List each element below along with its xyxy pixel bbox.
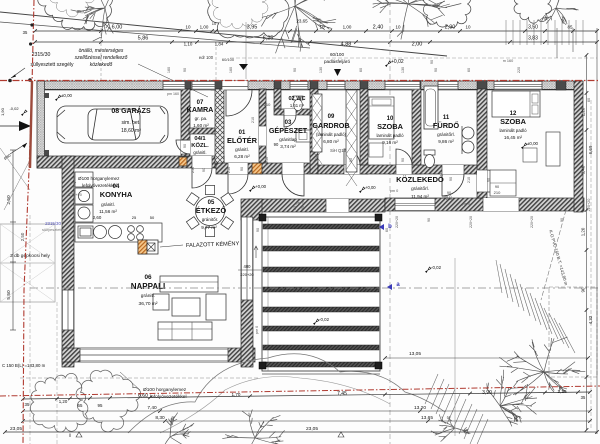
svg-text:GARDROB: GARDROB — [312, 121, 349, 130]
svg-text:3,83: 3,83 — [528, 36, 538, 42]
svg-text:1,30+20: 1,30+20 — [68, 193, 82, 197]
svg-text:6,80 m²: 6,80 m² — [323, 139, 339, 144]
svg-text:1,20: 1,20 — [581, 227, 586, 236]
svg-text:4,88: 4,88 — [341, 42, 352, 48]
svg-text:90: 90 — [293, 206, 297, 210]
svg-text:ÉTKEZŐ: ÉTKEZŐ — [196, 206, 227, 215]
svg-text:10: 10 — [395, 25, 401, 30]
svg-text:90: 90 — [293, 68, 297, 72]
svg-text:SZOBA: SZOBA — [500, 117, 527, 126]
svg-text:3,74 m²: 3,74 m² — [280, 144, 296, 149]
svg-text:KÖZL.: KÖZL. — [191, 142, 209, 149]
svg-text:KONYHA: KONYHA — [100, 190, 133, 199]
svg-text:90: 90 — [256, 228, 260, 232]
svg-text:-0,02: -0,02 — [9, 106, 19, 111]
svg-text:10: 10 — [319, 25, 325, 30]
svg-text:09: 09 — [328, 114, 335, 120]
svg-text:160: 160 — [229, 67, 233, 73]
svg-text:3,40: 3,40 — [581, 165, 586, 174]
svg-text:KAMRA: KAMRA — [187, 105, 214, 114]
svg-text:KÖZLEKEDŐ: KÖZLEKEDŐ — [396, 175, 444, 184]
svg-text:3,90: 3,90 — [482, 390, 492, 396]
svg-text:+0,00: +0,00 — [255, 184, 267, 189]
svg-text:130: 130 — [401, 67, 405, 73]
svg-text:3,95: 3,95 — [247, 25, 258, 31]
svg-text:2,20: 2,20 — [558, 389, 567, 394]
svg-text:6,28 m²: 6,28 m² — [234, 154, 250, 159]
svg-text:220+20: 220+20 — [240, 272, 254, 277]
svg-text:90: 90 — [487, 178, 491, 182]
svg-text:10: 10 — [465, 25, 471, 30]
svg-text:pm 0: pm 0 — [462, 202, 470, 206]
svg-text:90: 90 — [274, 142, 279, 147]
svg-text:2 db gépkocsi hely: 2 db gépkocsi hely — [10, 253, 50, 259]
svg-text:gránitőrl.: gránitőrl. — [437, 132, 455, 137]
svg-text:1,90: 1,90 — [0, 107, 5, 116]
svg-text:gránitl.: gránitl. — [193, 150, 206, 155]
svg-text:pre 0: pre 0 — [255, 326, 259, 334]
svg-text:18,60 m²: 18,60 m² — [121, 128, 141, 134]
svg-text:16,45 m²: 16,45 m² — [504, 135, 523, 140]
svg-text:gránitlap: gránitlap — [279, 137, 297, 142]
svg-text:1,20: 1,20 — [59, 399, 68, 404]
svg-text:90: 90 — [349, 158, 353, 162]
svg-text:02 WC: 02 WC — [288, 96, 305, 102]
svg-text:25: 25 — [132, 215, 137, 220]
svg-text:13,65: 13,65 — [421, 415, 433, 421]
svg-text:210: 210 — [251, 117, 255, 123]
svg-text:5,50: 5,50 — [6, 290, 12, 300]
svg-text:gránitl.: gránitl. — [141, 293, 155, 299]
svg-text:10: 10 — [185, 25, 191, 30]
svg-text:90: 90 — [434, 68, 438, 72]
svg-text:ELŐTÉR: ELŐTÉR — [227, 136, 258, 145]
svg-text:160: 160 — [167, 67, 171, 73]
svg-text:23,65: 23,65 — [296, 19, 308, 24]
svg-text:gránitőr.: gránitőr. — [202, 217, 219, 222]
svg-text:edr 100: edr 100 — [199, 55, 214, 60]
svg-text:4,32: 4,32 — [588, 315, 593, 324]
svg-text:90: 90 — [183, 144, 187, 148]
svg-text:Ø100 horganylemez: Ø100 horganylemez — [78, 176, 120, 181]
svg-text:60: 60 — [467, 68, 471, 72]
svg-text:220: 220 — [517, 67, 521, 73]
svg-text:65: 65 — [78, 403, 83, 408]
svg-text:1,61 m²: 1,61 m² — [290, 103, 305, 108]
svg-text:laminált padló: laminált padló — [376, 133, 404, 138]
svg-text:2,60: 2,60 — [93, 215, 102, 220]
svg-text:90: 90 — [430, 60, 434, 64]
svg-text:85: 85 — [567, 25, 573, 30]
svg-text:SZOBA: SZOBA — [377, 122, 404, 131]
svg-text:lefolyóvezetékkel: lefolyóvezetékkel — [82, 183, 117, 188]
svg-text:8,30: 8,30 — [155, 415, 165, 421]
svg-text:SiH Q19: SiH Q19 — [330, 148, 346, 153]
svg-text:Ø100 horganylemez: Ø100 horganylemez — [143, 387, 187, 393]
svg-text:9,16 m²: 9,16 m² — [382, 140, 398, 145]
svg-text:NAPPALI: NAPPALI — [131, 282, 166, 291]
svg-text:06: 06 — [144, 274, 152, 281]
svg-text:2315/30: 2315/30 — [32, 52, 51, 58]
svg-text:2,90: 2,90 — [445, 25, 456, 31]
svg-text:60: 60 — [587, 98, 591, 102]
svg-text:7,45: 7,45 — [337, 391, 347, 397]
svg-text:220+20: 220+20 — [530, 216, 534, 228]
svg-text:90: 90 — [401, 158, 405, 162]
svg-text:90: 90 — [447, 191, 451, 195]
svg-text:90: 90 — [495, 185, 499, 189]
svg-text:05: 05 — [301, 206, 305, 210]
svg-text:7,40: 7,40 — [147, 405, 157, 411]
svg-text:9,77 m²: 9,77 m² — [201, 225, 217, 230]
svg-text:210: 210 — [264, 102, 271, 107]
svg-text:2,40: 2,40 — [373, 25, 384, 31]
svg-text:1,60 m²: 1,60 m² — [193, 123, 209, 128]
svg-text:210: 210 — [191, 167, 195, 173]
svg-text:2,20: 2,20 — [581, 107, 586, 116]
svg-text:közlekedő: közlekedő — [90, 62, 113, 68]
svg-text:m 160: m 160 — [503, 59, 514, 63]
svg-text:11,56 m²: 11,56 m² — [99, 209, 117, 214]
svg-text:GÉPÉSZET: GÉPÉSZET — [269, 126, 308, 135]
svg-text:130: 130 — [319, 67, 323, 73]
svg-text:3,50: 3,50 — [528, 25, 538, 31]
svg-text:220+20: 220+20 — [587, 199, 591, 212]
svg-text:90: 90 — [427, 218, 431, 222]
svg-text:210: 210 — [446, 197, 452, 201]
svg-text:210: 210 — [265, 157, 269, 163]
svg-text:pm 160: pm 160 — [167, 92, 179, 96]
svg-text:szellőzéssel rendelkező: szellőzéssel rendelkező — [75, 55, 128, 61]
svg-text:23,05: 23,05 — [306, 426, 318, 432]
svg-text:+0,00: +0,00 — [365, 185, 376, 190]
svg-text:04/1: 04/1 — [194, 136, 206, 142]
svg-text:gr. pa.: gr. pa. — [195, 116, 208, 121]
svg-text:50: 50 — [150, 215, 155, 220]
svg-text:90: 90 — [449, 177, 453, 181]
svg-text:1,70: 1,70 — [232, 392, 241, 397]
svg-text:13,20: 13,20 — [414, 405, 426, 411]
svg-text:08 GARÁZS: 08 GARÁZS — [111, 106, 151, 115]
svg-text:90: 90 — [240, 167, 244, 171]
svg-text:2,00: 2,00 — [412, 42, 423, 48]
svg-text:1,00: 1,00 — [343, 25, 352, 30]
svg-text:36,70 m²: 36,70 m² — [139, 301, 158, 307]
svg-text:9,86 m²: 9,86 m² — [438, 139, 454, 144]
svg-text:1,00: 1,00 — [200, 25, 209, 30]
svg-text:5,86: 5,86 — [138, 36, 149, 42]
svg-text:6,00: 6,00 — [112, 25, 123, 31]
svg-text:1,10: 1,10 — [184, 42, 193, 47]
svg-text:95: 95 — [98, 403, 103, 408]
svg-text:210: 210 — [494, 190, 501, 195]
svg-text:6,25: 6,25 — [263, 36, 274, 42]
svg-text:35: 35 — [581, 395, 586, 400]
svg-text:10: 10 — [212, 21, 217, 26]
svg-text:-0,02: -0,02 — [431, 265, 442, 270]
svg-text:süllyesztett szegély: süllyesztett szegély — [30, 62, 74, 68]
svg-text:220+20: 220+20 — [395, 216, 399, 228]
svg-text:pm 0: pm 0 — [390, 189, 398, 193]
svg-text:padlásfeljáró: padlásfeljáró — [324, 59, 350, 64]
svg-text:süllyesztett sz.: süllyesztett sz. — [42, 227, 68, 232]
svg-text:FÜRDŐ: FÜRDŐ — [433, 121, 460, 130]
svg-text:90: 90 — [202, 168, 206, 172]
svg-text:210: 210 — [467, 177, 471, 183]
svg-text:2315/30: 2315/30 — [45, 221, 61, 226]
svg-text:210: 210 — [227, 167, 231, 173]
svg-text:23,05: 23,05 — [10, 426, 22, 432]
svg-text:35: 35 — [23, 30, 28, 35]
svg-text:pre 0: pre 0 — [296, 201, 305, 205]
svg-text:400: 400 — [244, 264, 252, 269]
svg-text:önálló, mesterséges: önálló, mesterséges — [79, 48, 124, 54]
svg-text:90: 90 — [581, 287, 586, 292]
svg-text:60: 60 — [359, 68, 363, 72]
svg-text:220+20: 220+20 — [469, 216, 473, 228]
svg-text:35: 35 — [25, 402, 30, 407]
svg-text:13,05: 13,05 — [409, 351, 421, 357]
svg-text:90: 90 — [183, 68, 187, 72]
svg-text:2,50: 2,50 — [20, 232, 25, 241]
svg-text:gránitőrl.: gránitőrl. — [411, 186, 429, 191]
svg-text:60: 60 — [385, 228, 389, 232]
svg-text:90: 90 — [560, 218, 564, 222]
svg-text:±0,00: ±0,00 — [61, 93, 73, 98]
svg-text:ll: ll — [69, 433, 71, 438]
svg-text:laminált padló: laminált padló — [499, 128, 527, 133]
svg-text:gránitl.: gránitl. — [101, 202, 115, 207]
svg-text:-0,02: -0,02 — [319, 317, 330, 322]
svg-text:60/100: 60/100 — [330, 52, 344, 57]
svg-text:gránitl.: gránitl. — [235, 147, 249, 152]
svg-text:11,94 m²: 11,94 m² — [411, 194, 429, 199]
svg-text:(laminált padló): (laminált padló) — [316, 132, 347, 137]
svg-text:60/100: 60/100 — [222, 57, 235, 62]
svg-text:±0,00: ±0,00 — [527, 141, 539, 146]
svg-text:sim. bet.: sim. bet. — [122, 120, 141, 126]
svg-text:6,69: 6,69 — [588, 145, 593, 154]
svg-text:+0,02: +0,02 — [391, 59, 404, 65]
